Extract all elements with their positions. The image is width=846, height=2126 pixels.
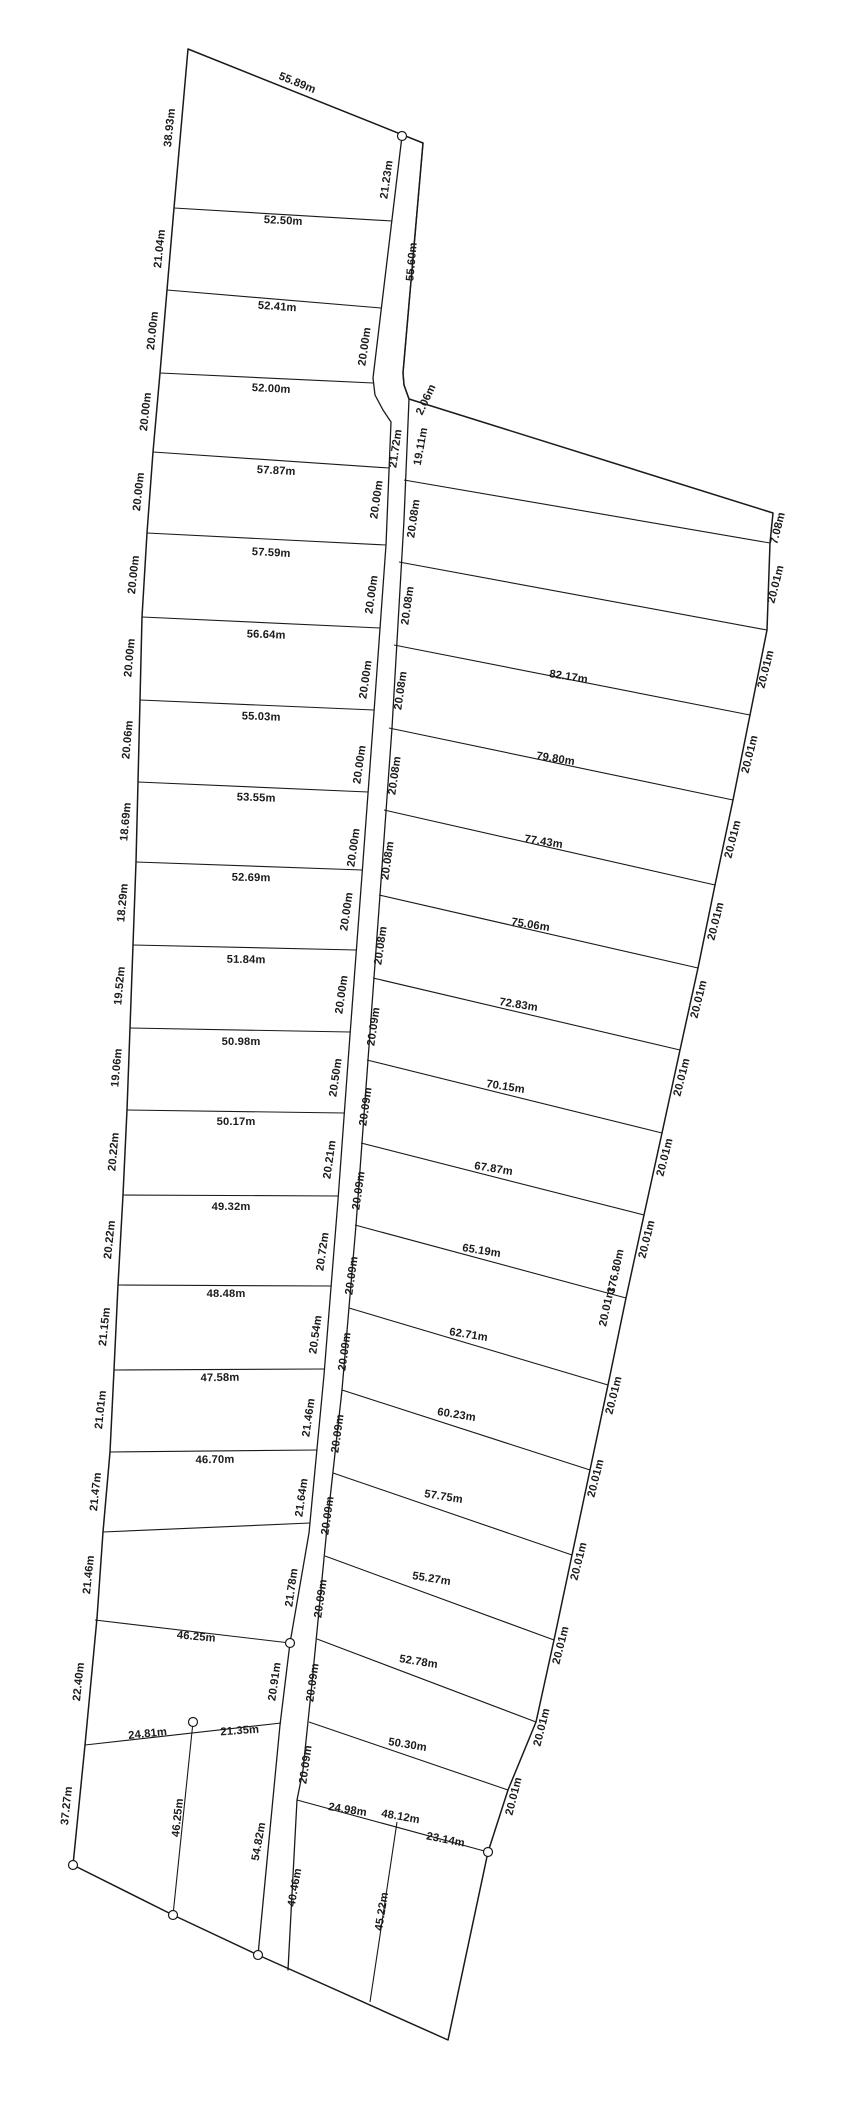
dimension-label: 50.98m [222, 1036, 261, 1048]
dimension-label: 53.55m [236, 791, 275, 804]
dimension-label: 20.00m [333, 975, 350, 1015]
dimension-label: 72.83m [498, 996, 538, 1014]
dimension-label: 62.71m [448, 1326, 488, 1344]
dimension-label: 20.00m [351, 745, 368, 785]
dimension-label: 20.01m [655, 1137, 676, 1178]
dimension-label: 70.15m [485, 1078, 525, 1096]
survey-marker [484, 1848, 493, 1857]
dimension-label: 21.64m [293, 1478, 310, 1518]
survey-marker [169, 1911, 178, 1920]
dimension-label: 20.00m [363, 575, 380, 615]
dimension-label: 40.46m [286, 1867, 305, 1907]
dimension-label: 52.00m [251, 382, 290, 396]
dimension-label: 20.09m [312, 1579, 329, 1619]
lot-line [123, 1195, 338, 1196]
dimension-label: 57.87m [256, 464, 295, 478]
dimension-label: 21.15m [97, 1307, 113, 1347]
dimension-label: 20.00m [345, 828, 362, 868]
lot-line [133, 945, 356, 950]
dimension-label: 24.81m [128, 1726, 168, 1742]
lot-line [355, 1225, 626, 1298]
dimension-label: 67.87m [473, 1160, 513, 1178]
lot-line [404, 480, 770, 543]
dimension-label: 20.08m [399, 586, 416, 626]
dimension-label: 21.46m [300, 1398, 317, 1438]
dimension-label: 20.72m [314, 1232, 331, 1272]
survey-plat-drawing: 55.89m38.93m21.04m20.00m20.00m20.00m20.0… [0, 0, 846, 2126]
dimension-label: 55.27m [411, 1570, 451, 1588]
dimension-label: 20.08m [379, 841, 396, 881]
dimension-label: 82.17m [548, 668, 588, 686]
dimension-label: 20.09m [357, 1087, 374, 1127]
dimension-label: 21.35m [220, 1724, 260, 1739]
lot-line [138, 782, 368, 792]
dimension-label: 52.78m [398, 1653, 438, 1671]
lot-line [367, 1060, 662, 1133]
dimension-label: 57.75m [423, 1488, 463, 1506]
dimension-label: 20.21m [321, 1140, 338, 1180]
dimension-label: 20.09m [365, 1007, 382, 1047]
lot-line [333, 1473, 572, 1555]
dimension-label: 47.58m [200, 1372, 239, 1385]
dimension-label: 20.09m [336, 1332, 353, 1372]
dimension-label: 20.00m [357, 660, 374, 700]
lot-line [317, 1639, 536, 1722]
dimension-label: 18.69m [118, 802, 133, 842]
lot-line [325, 1556, 554, 1640]
dimension-label: 20.01m [706, 901, 727, 942]
survey-marker [286, 1639, 295, 1648]
lot-line [127, 1110, 344, 1113]
dimension-label: 52.41m [257, 300, 297, 315]
dimension-label: 20.54m [307, 1315, 324, 1355]
dimension-label: 18.29m [115, 883, 130, 923]
dimension-label: 376.80m [605, 1248, 626, 1295]
survey-marker [398, 132, 407, 141]
dimension-label: 60.23m [436, 1406, 476, 1424]
dimension-label: 46.70m [195, 1454, 234, 1467]
dimension-label: 20.00m [368, 480, 385, 520]
dimension-label: 37.27m [59, 1786, 75, 1826]
dimension-label: 20.50m [327, 1058, 344, 1098]
dimension-label: 20.00m [138, 392, 154, 432]
lot-line [110, 1450, 317, 1452]
survey-marker [189, 1718, 198, 1727]
dimension-label: 20.00m [126, 555, 142, 595]
dimension-label: 48.12m [380, 1808, 420, 1827]
dimension-label: 20.00m [122, 638, 137, 678]
dimension-label: 38.93m [162, 108, 178, 148]
dimension-label: 20.08m [405, 499, 422, 539]
dimension-label: 21.47m [88, 1472, 104, 1512]
lot-line [114, 1369, 324, 1370]
lot-line [361, 1143, 644, 1215]
dimension-label: 2.06m [414, 382, 439, 417]
dimension-label: 79.80m [535, 750, 575, 768]
dimension-label: 65.19m [461, 1242, 501, 1260]
dimension-label: 7.08m [768, 511, 788, 545]
dimension-label: 55.03m [241, 710, 280, 723]
dimension-label: 20.00m [356, 327, 373, 367]
dimension-label: 48.48m [207, 1288, 246, 1300]
dimension-label: 20.00m [145, 311, 161, 351]
dimension-label: 20.22m [102, 1220, 118, 1260]
dimension-label: 20.01m [532, 1707, 553, 1748]
lot-line [349, 1308, 608, 1385]
dimension-label: 22.40m [71, 1662, 87, 1702]
dimension-label: 21.23m [378, 160, 395, 200]
lot-line [136, 862, 362, 870]
dimension-label: 21.04m [152, 229, 168, 269]
dimension-label: 54.82m [250, 1821, 269, 1861]
dimension-label: 19.06m [109, 1048, 124, 1088]
dimension-label: 20.09m [350, 1171, 367, 1211]
plat-svg: 55.89m38.93m21.04m20.00m20.00m20.00m20.0… [0, 0, 846, 2126]
dimension-label: 46.25m [170, 1798, 186, 1838]
dimension-label: 45.22m [373, 1891, 391, 1931]
dimension-label: 20.09m [329, 1414, 346, 1454]
dimension-label: 21.78m [283, 1568, 300, 1608]
lot-line [118, 1285, 331, 1286]
dimension-label: 77.43m [523, 833, 563, 851]
lot-line [142, 617, 380, 628]
dimension-label: 20.91m [266, 1662, 283, 1702]
dimension-label: 20.09m [319, 1496, 336, 1536]
lot-line [130, 1028, 350, 1032]
dimension-label: 20.01m [569, 1541, 590, 1582]
dimension-label: 23.14m [425, 1830, 465, 1849]
dimension-label: 21.46m [81, 1555, 97, 1595]
dimension-label: 21.01m [93, 1390, 109, 1430]
dimension-label: 20.09m [297, 1745, 314, 1785]
dimension-label: 20.01m [551, 1625, 572, 1666]
dimension-label: 57.59m [251, 546, 290, 560]
dimension-label: 46.25m [176, 1629, 216, 1644]
dimension-label: 55.60m [404, 242, 419, 282]
dimension-label: 20.06m [120, 720, 135, 760]
lot-line [309, 1722, 508, 1790]
dimension-label: 52.69m [232, 872, 271, 885]
dimension-label: 20.09m [304, 1663, 321, 1703]
lot-line [103, 1523, 310, 1532]
dimension-label: 19.52m [112, 966, 127, 1006]
lot-line [160, 373, 373, 383]
dimension-label: 19.11m [412, 427, 430, 467]
dimension-label: 52.50m [263, 214, 302, 228]
dimension-label: 50.17m [217, 1116, 256, 1128]
dimension-label: 20.09m [343, 1256, 360, 1296]
dimension-label: 75.06m [510, 916, 550, 934]
dimension-label: 56.64m [246, 628, 285, 641]
survey-marker [254, 1951, 263, 1960]
dimension-label: 51.84m [227, 954, 266, 967]
dimension-label: 20.01m [637, 1219, 658, 1260]
dimension-label: 24.98m [327, 1801, 367, 1819]
dimension-label: 20.08m [372, 926, 389, 966]
survey-marker [69, 1861, 78, 1870]
dimension-label: 49.32m [212, 1201, 251, 1213]
dimension-label: 20.00m [131, 472, 147, 512]
lot-line [342, 1390, 590, 1470]
lot-line [147, 533, 386, 545]
dimension-label: 20.00m [338, 892, 355, 932]
dimension-label: 20.01m [723, 819, 744, 860]
lot-line [140, 700, 374, 710]
dimension-label: 20.01m [597, 1287, 617, 1327]
dimension-label: 20.01m [604, 1375, 625, 1416]
dimension-label: 20.22m [106, 1132, 121, 1172]
lot-line [373, 978, 680, 1050]
lot-line [399, 562, 767, 630]
